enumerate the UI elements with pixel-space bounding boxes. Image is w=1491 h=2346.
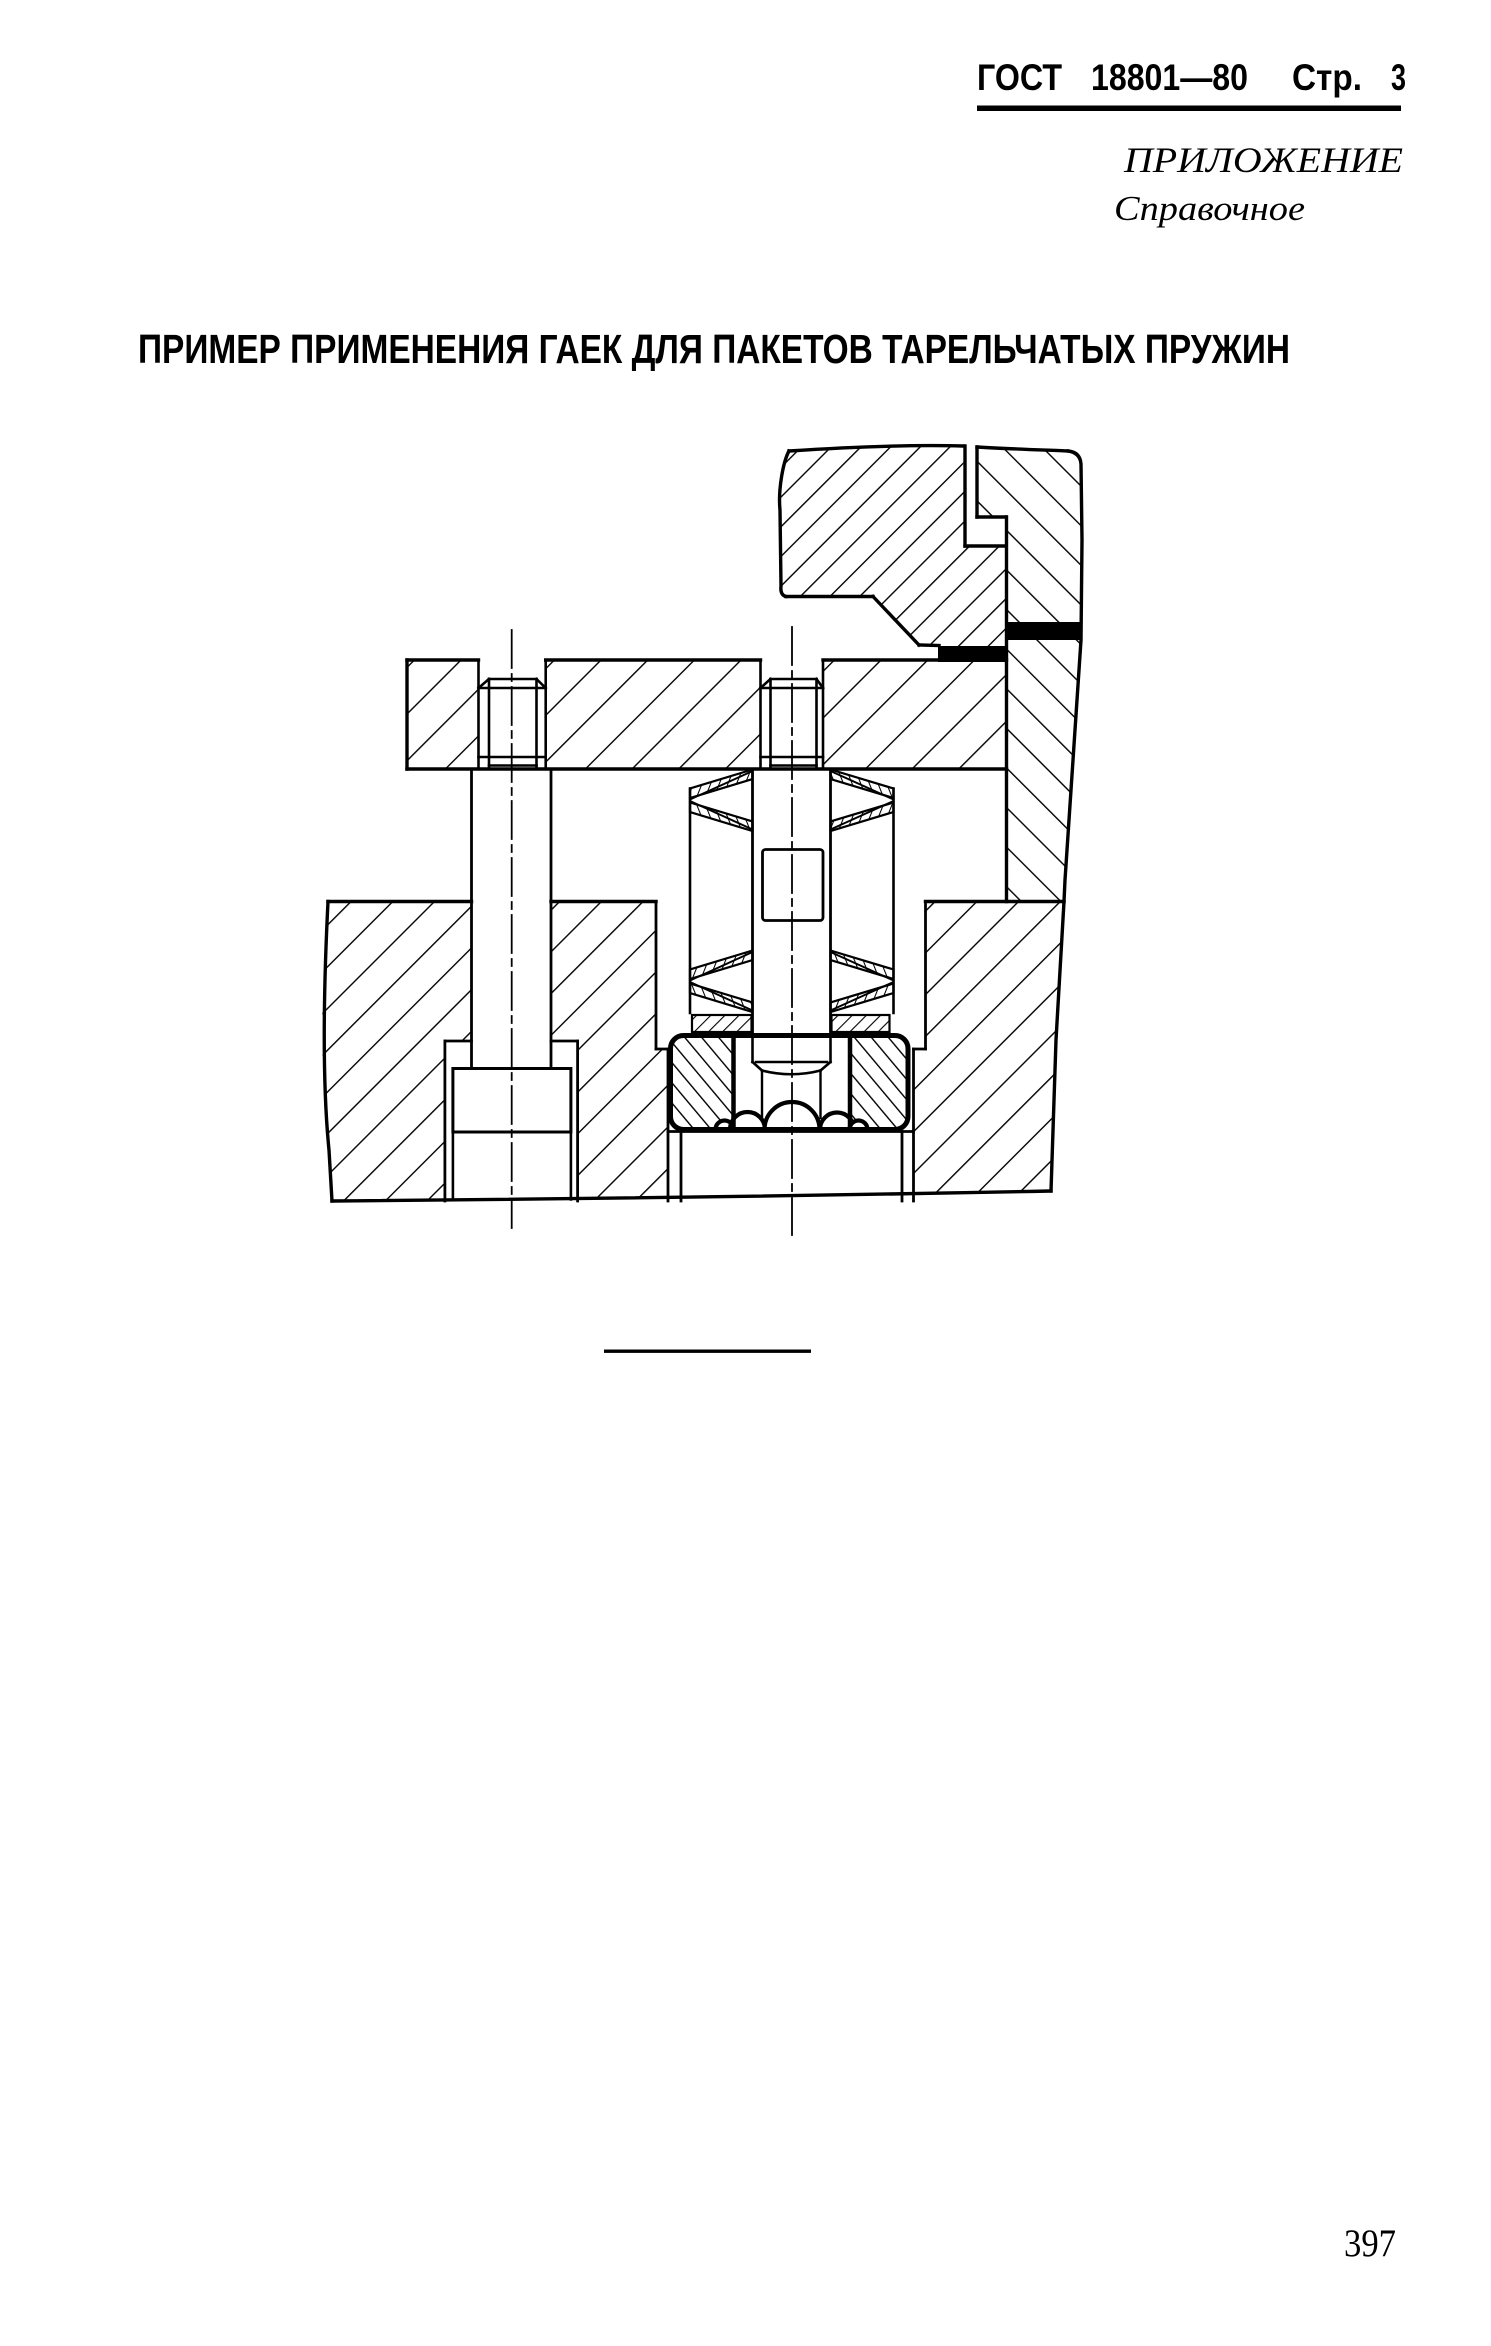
svg-text:ПРИМЕР ПРИМЕНЕНИЯ ГАЕК ДЛЯ ПАК: ПРИМЕР ПРИМЕНЕНИЯ ГАЕК ДЛЯ ПАКЕТОВ ТАРЕЛ… xyxy=(138,326,1290,372)
svg-text:ГОСТ: ГОСТ xyxy=(977,57,1062,98)
svg-text:ПРИЛОЖЕНИЕ: ПРИЛОЖЕНИЕ xyxy=(1123,140,1403,180)
svg-text:18801—80: 18801—80 xyxy=(1091,57,1248,98)
svg-text:397: 397 xyxy=(1344,2222,1396,2265)
svg-text:Стр.: Стр. xyxy=(1292,57,1362,98)
svg-text:3: 3 xyxy=(1391,57,1406,98)
svg-text:Справочное: Справочное xyxy=(1114,189,1305,228)
